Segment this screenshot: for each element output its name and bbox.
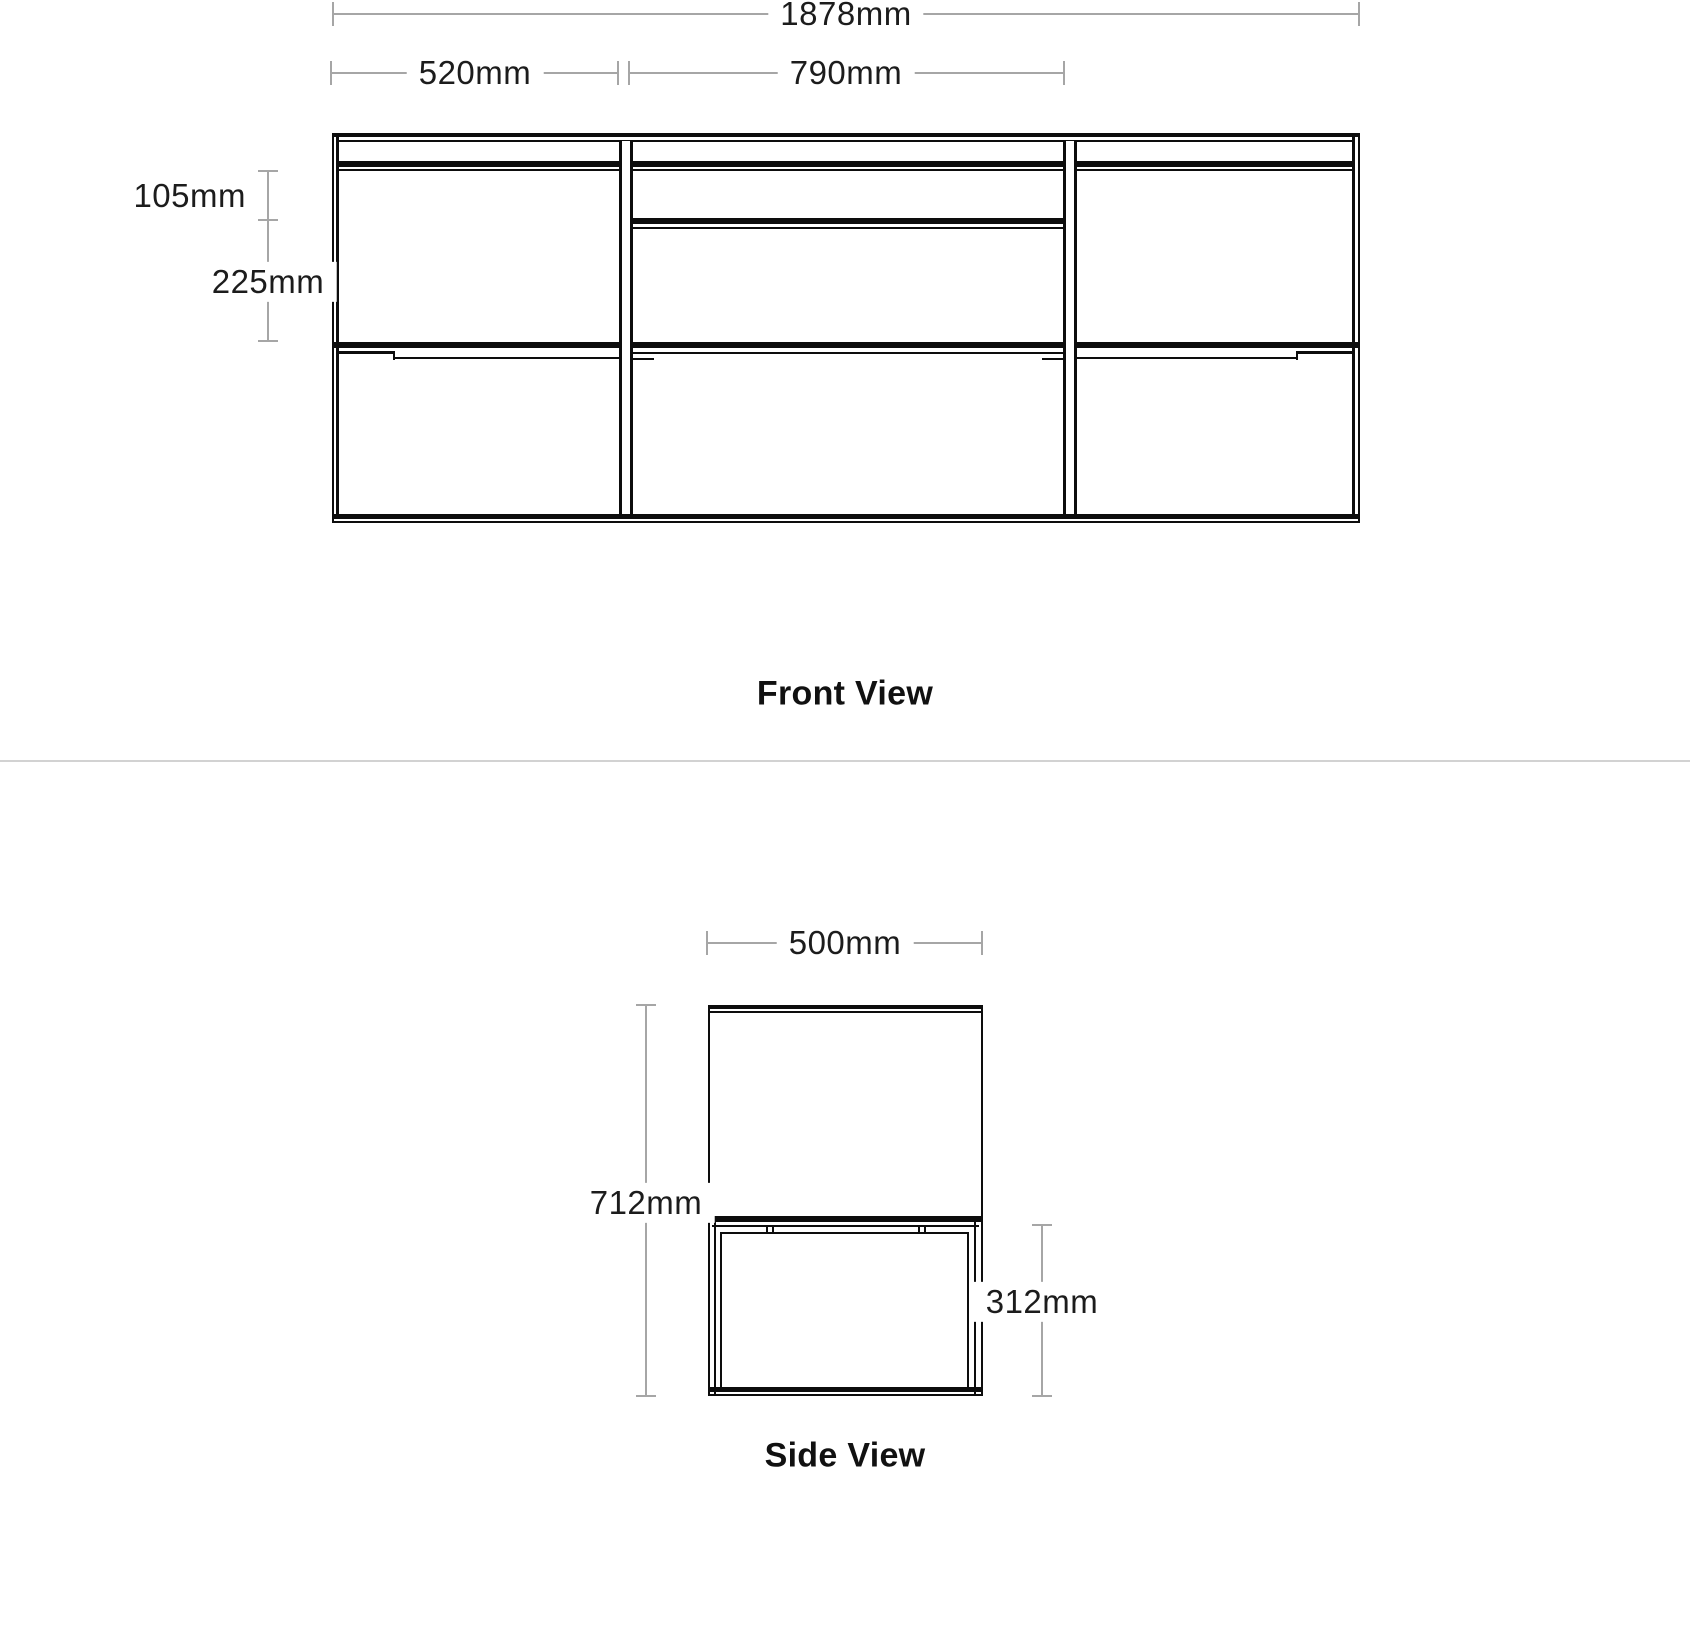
- front-top-panel: [332, 133, 1360, 142]
- section-separator: [0, 760, 1690, 762]
- front-upper-bottom-rail: [332, 342, 1360, 348]
- dim-total-height: 712mm: [578, 1183, 715, 1223]
- side-base-inner-box: [720, 1232, 969, 1387]
- front-view-title: Front View: [757, 675, 933, 714]
- side-view-drawing: [636, 931, 1052, 1397]
- front-middle-drawer-divider: [632, 218, 1064, 229]
- side-base-frame: [708, 1222, 983, 1396]
- front-upper-reveal-rails: [337, 161, 1354, 171]
- diagram-canvas: 1878mm 520mm 790mm 105mm 225mm Front Vie…: [0, 0, 1690, 1636]
- dim-lower-drawer-height: 225mm: [200, 262, 337, 302]
- side-top-panel: [708, 1005, 983, 1013]
- side-dimension-lines: [636, 931, 1052, 1397]
- dimension-diagram-page: { "page": { "background": "#ffffff" }, "…: [0, 0, 1690, 1636]
- dim-total-width: 1878mm: [768, 0, 923, 34]
- side-upper-body: [708, 1005, 983, 1227]
- side-cabinet: [708, 1005, 983, 1396]
- front-cabinet: [332, 133, 1360, 523]
- dim-depth: 500mm: [777, 923, 914, 963]
- front-lower-drawer-edges: [337, 351, 1354, 360]
- dim-base-height: 312mm: [974, 1282, 1111, 1322]
- front-bottom-rail: [332, 514, 1360, 523]
- front-side-edges: [332, 133, 1360, 523]
- dim-top-drawer-height: 105mm: [127, 176, 252, 216]
- side-view-title: Side View: [765, 1437, 926, 1476]
- line-art: [0, 0, 1690, 1636]
- dim-left-section-width: 520mm: [407, 53, 544, 93]
- front-bay-dividers: [619, 141, 1077, 514]
- dim-center-section-width: 790mm: [778, 53, 915, 93]
